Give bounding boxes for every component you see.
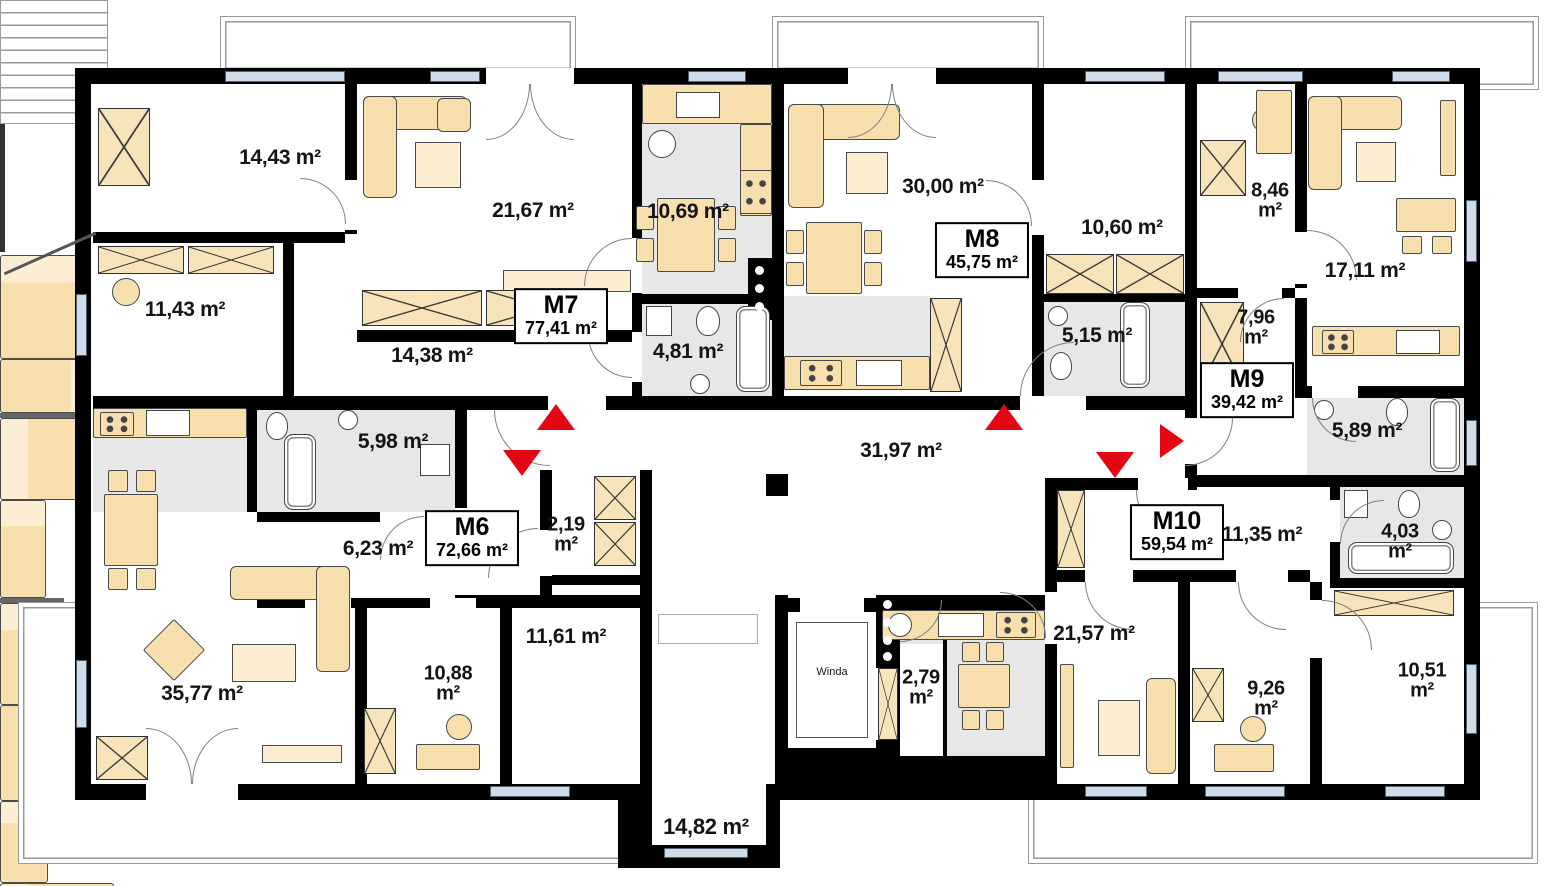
toilet-icon	[1398, 490, 1420, 518]
entrance-arrow-up-m7	[537, 404, 575, 430]
sofa-icon	[788, 104, 824, 208]
door-gap	[800, 598, 864, 612]
apartment-name: M6	[436, 515, 508, 540]
kitchen-sink-icon	[938, 613, 984, 637]
door-gap	[345, 180, 357, 230]
window	[225, 71, 345, 82]
wall-dot	[755, 302, 764, 311]
dining-table-icon	[806, 222, 862, 294]
sofa-icon	[316, 566, 350, 672]
chair-icon	[108, 568, 128, 590]
wall-dot	[755, 284, 764, 293]
bathtub-icon	[1430, 398, 1460, 472]
tv-shelf-icon	[262, 745, 342, 763]
wall	[1295, 298, 1307, 396]
door-gap	[655, 595, 717, 607]
desk-icon	[1214, 744, 1274, 772]
apartment-area: 59,54 m²	[1141, 534, 1213, 555]
window-stairwell	[664, 848, 748, 858]
chair-icon	[864, 230, 882, 254]
window	[490, 786, 570, 797]
wall-dot	[883, 600, 892, 609]
toilet-icon	[696, 306, 720, 336]
washer-icon	[646, 306, 672, 336]
apartment-area: 39,42 m²	[1211, 392, 1283, 413]
apartment-box-m6: M6 72,66 m²	[425, 510, 519, 566]
sink-icon	[1432, 520, 1452, 540]
elevator-car	[796, 622, 868, 738]
wall	[1178, 570, 1190, 784]
room-label-m7-living: 21,67 m²	[492, 199, 574, 223]
wall	[788, 598, 800, 612]
room-label-m8-bedroom: 10,60 m²	[1081, 216, 1163, 240]
wall-dot	[755, 266, 764, 275]
window	[76, 660, 87, 728]
wall	[1197, 475, 1464, 487]
staircase-label: 14,82 m²	[663, 814, 749, 840]
armchair-icon	[437, 98, 471, 132]
wardrobe-icon	[1192, 668, 1224, 722]
window	[1218, 71, 1303, 82]
room-label-m6-living: 35,77 m²	[161, 682, 243, 706]
room-label-m10-pantry: 2,79 m²	[889, 668, 953, 709]
apartment-box-m8: M8 45,75 m²	[935, 222, 1029, 278]
kitchen-sink-icon	[856, 360, 902, 386]
wall	[882, 756, 1045, 784]
window	[1392, 71, 1450, 82]
chair-icon	[136, 568, 156, 590]
balcony-door-gap-m7	[486, 68, 574, 84]
wardrobe-icon	[362, 290, 482, 326]
wardrobe-icon	[930, 298, 962, 392]
room-label-m8-living: 30,00 m²	[902, 175, 984, 199]
room-label-m7-kitchen: 10,69 m²	[647, 200, 729, 224]
door-gap	[1032, 180, 1044, 235]
chair-icon	[1432, 236, 1452, 254]
entrance-arrow-down-m10	[1096, 452, 1134, 478]
floor-plan: 14,43 m² 21,67 m² 10,69 m² 11,43 m² 14,3…	[0, 0, 1555, 886]
chair-icon	[786, 262, 804, 286]
balcony-door-gap-m8	[848, 68, 936, 84]
wall-dot	[883, 636, 892, 645]
bathtub-icon	[284, 434, 316, 510]
coffee-table-icon	[1356, 142, 1396, 182]
sink-icon	[1048, 306, 1068, 326]
coffee-table-icon	[1098, 700, 1140, 756]
room-label-m9-living: 17,11 m²	[1325, 259, 1406, 283]
room-label-m10-bedroom2: 10,51 m²	[1390, 661, 1454, 702]
chair-icon	[962, 710, 980, 730]
apartment-box-m10: M10 59,54 m²	[1130, 504, 1224, 560]
wardrobe-icon	[594, 522, 636, 566]
window	[430, 71, 480, 82]
wall	[552, 575, 640, 585]
stove-icon	[800, 360, 842, 386]
wardrobe-icon	[98, 246, 184, 274]
wall-dot	[883, 618, 892, 627]
coffee-table-icon	[232, 644, 296, 682]
corridor-pillar	[766, 474, 788, 496]
door-gap	[1085, 570, 1133, 582]
door-gap-m8-entry	[1020, 396, 1086, 410]
wall	[1330, 578, 1464, 588]
wall	[455, 408, 467, 508]
apartment-name: M9	[1211, 367, 1283, 392]
entrance-arrow-right-m9	[1160, 424, 1184, 458]
dining-table-icon	[958, 664, 1010, 708]
stove-icon	[100, 412, 134, 436]
desk-icon	[1256, 90, 1292, 154]
stairwell	[652, 612, 766, 845]
window	[1466, 664, 1477, 734]
room-label-m6-hall: 6,23 m²	[343, 537, 413, 561]
coffee-table-icon	[846, 152, 888, 194]
wardrobe-icon	[1057, 490, 1085, 568]
room-label-m9-bathroom: 5,89 m²	[1332, 419, 1402, 443]
room-label-m10-hall: 11,35 m²	[1222, 523, 1303, 547]
wardrobe-icon	[1046, 254, 1114, 294]
wall	[640, 470, 652, 800]
wardrobe-icon	[188, 246, 274, 274]
apartment-area: 45,75 m²	[946, 252, 1018, 273]
window	[1466, 420, 1477, 466]
door-gap	[1236, 570, 1288, 582]
room-label-m7-bathroom: 4,81 m²	[653, 340, 723, 364]
chair-icon	[1402, 236, 1422, 254]
chair-icon	[718, 238, 736, 262]
balcony-top-middle	[772, 16, 1044, 74]
wall	[247, 408, 257, 512]
door-gap	[1310, 600, 1322, 658]
tv-shelf-icon	[1440, 100, 1456, 176]
apartment-name: M7	[525, 293, 597, 318]
window	[688, 71, 746, 82]
tv-shelf-icon	[1060, 664, 1074, 768]
door-gap	[1295, 232, 1307, 284]
room-label-m9-bedroom: 8,46 m²	[1238, 181, 1302, 222]
wardrobe-icon	[1116, 254, 1184, 294]
chair-icon	[864, 262, 882, 286]
apartment-box-m9: M9 39,42 m²	[1200, 362, 1294, 418]
side-table-icon	[112, 278, 140, 306]
apartment-area: 77,41 m²	[525, 318, 597, 339]
room-label-m6-closet: 2,19 m²	[534, 515, 598, 556]
door-gap	[1312, 386, 1358, 398]
window	[1466, 200, 1477, 262]
chair-icon	[636, 238, 654, 262]
wall-dot	[883, 652, 892, 661]
dining-table-icon	[104, 494, 158, 566]
room-label-m8-bathroom: 5,15 m²	[1062, 324, 1132, 348]
room-label-m7-hall: 14,38 m²	[391, 344, 473, 368]
door-gap	[632, 332, 642, 382]
room-label-m7-bedroom2: 11,43 m²	[145, 298, 226, 322]
entrance-arrow-up-m8	[985, 404, 1023, 430]
chair-icon	[1240, 716, 1266, 742]
room-label-m6-bedroom1: 10,88 m²	[416, 664, 480, 705]
room-label-m7-bedroom1: 14,43 m²	[239, 146, 321, 170]
sofa-icon	[363, 96, 397, 198]
room-label-m9-hall: 7,96 m²	[1224, 308, 1288, 349]
toilet-icon	[266, 412, 288, 440]
wardrobe-icon	[98, 108, 150, 186]
chair-icon	[986, 710, 1004, 730]
stairs-landing	[658, 614, 758, 644]
terrace-door-gap-m6	[146, 784, 238, 800]
chair-icon	[962, 642, 980, 662]
wall	[1185, 84, 1197, 410]
wall	[772, 84, 784, 406]
stairs-rail	[0, 124, 5, 252]
wall	[283, 243, 294, 396]
wall	[93, 232, 345, 243]
sofa-icon	[1146, 678, 1176, 774]
room-label-m10-bedroom1: 9,26 m²	[1234, 679, 1298, 720]
desk-icon	[416, 744, 480, 770]
chair-icon	[446, 714, 472, 740]
kitchen-sink-icon	[676, 92, 720, 118]
wall	[864, 598, 876, 612]
kitchen-sink-icon	[1396, 330, 1440, 354]
apartment-area: 72,66 m²	[436, 540, 508, 561]
coffee-table-icon	[415, 142, 461, 188]
balcony-top-left	[220, 16, 576, 74]
washer-icon	[648, 130, 676, 158]
room-label-m6-bathroom: 5,98 m²	[358, 430, 428, 454]
wardrobe-icon	[96, 736, 148, 780]
room-label-m10-bathroom: 4,03 m²	[1368, 522, 1432, 563]
bathtub-icon	[736, 306, 770, 392]
elevator-label: Winda	[816, 666, 847, 678]
wardrobe-icon	[364, 708, 396, 774]
chair-icon	[986, 642, 1004, 662]
apartment-name: M8	[946, 227, 1018, 252]
window	[1085, 786, 1147, 797]
wardrobe-icon	[594, 476, 636, 520]
chair-icon	[786, 230, 804, 254]
wall	[500, 608, 512, 784]
corridor-label: 31,97 m²	[860, 439, 942, 463]
window	[1085, 71, 1165, 82]
door-gap	[1238, 288, 1282, 298]
single-bed-icon	[0, 500, 46, 598]
window	[1205, 786, 1285, 797]
sofa-icon	[1308, 96, 1342, 190]
desk-icon	[1396, 198, 1456, 232]
double-bed-icon	[0, 883, 114, 886]
sink-icon	[690, 374, 710, 394]
kitchen-sink-icon	[146, 410, 190, 436]
chair-icon	[136, 470, 156, 492]
room-label-m10-living: 21,57 m²	[1053, 622, 1135, 646]
door-gap-m10-entry	[1138, 478, 1188, 490]
apartment-box-m7: M7 77,41 m²	[514, 288, 608, 344]
door-gap	[430, 598, 476, 608]
stove-icon	[1322, 330, 1354, 354]
window	[1385, 786, 1445, 797]
apartment-name: M10	[1141, 509, 1213, 534]
wall-elevator-left	[775, 595, 788, 760]
chair-icon	[108, 470, 128, 492]
wall	[1044, 294, 1185, 302]
sink-icon	[338, 410, 358, 430]
window	[76, 294, 87, 356]
door-gap	[1330, 500, 1340, 542]
stove-icon	[740, 170, 772, 214]
room-label-m6-bedroom2: 11,61 m²	[526, 625, 607, 649]
entrance-arrow-down-m6	[503, 450, 541, 476]
